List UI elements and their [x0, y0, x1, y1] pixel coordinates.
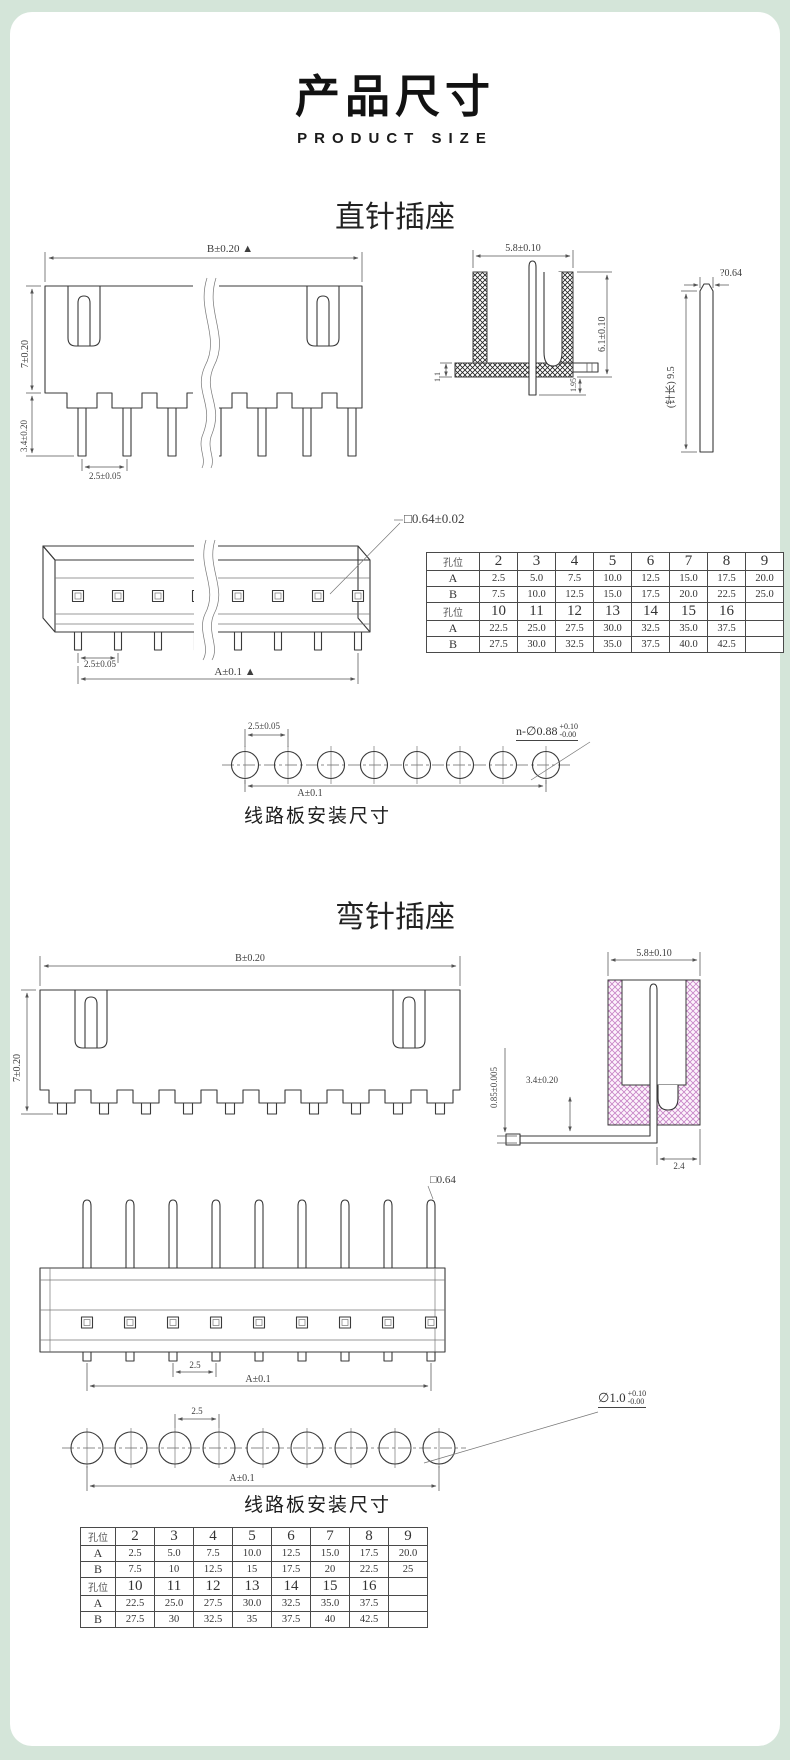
table-cell: 37.5 [272, 1612, 311, 1628]
hole-spec-tolerances: +0.10 -0.00 [559, 723, 578, 739]
table-cell: 37.5 [708, 621, 746, 637]
table-row-label: B [427, 587, 480, 603]
dim-label-bent-side-height: 3.4±0.20 [526, 1076, 558, 1086]
table-cell: 10.0 [518, 587, 556, 603]
table-cell: 17.5 [350, 1546, 389, 1562]
table-cell: 25.0 [155, 1596, 194, 1612]
table-cell: 7 [670, 553, 708, 571]
tolerance-lower: -0.00 [628, 1398, 647, 1406]
table-cell: 4 [194, 1528, 233, 1546]
table-cell: 7.5 [194, 1546, 233, 1562]
table-cell: 8 [708, 553, 746, 571]
table-cell: 10 [480, 603, 518, 621]
table-cell: 40 [311, 1612, 350, 1628]
dim-label-straight-side-height: 6.1±0.10 [597, 317, 608, 353]
dim-label-straight-front-height: 7±0.20 [20, 340, 31, 368]
dim-label-bent-side-width: 5.8±0.10 [608, 948, 700, 959]
table-row-label: B [81, 1612, 116, 1628]
table-row-label: B [81, 1562, 116, 1578]
dim-label-straight-front-pin: 3.4±0.20 [20, 420, 30, 452]
hole-spec-tolerances: +0.10 -0.00 [628, 1390, 647, 1406]
table-cell: 22.5 [116, 1596, 155, 1612]
table-cell: 30.0 [594, 621, 632, 637]
table-cell: 32.5 [272, 1596, 311, 1612]
dim-label-bent-side-pin: 0.85±0.005 [490, 1067, 500, 1108]
table-cell: 14 [272, 1578, 311, 1596]
table-cell: 7.5 [116, 1562, 155, 1578]
table-cell [389, 1578, 428, 1596]
table-cell: 3 [518, 553, 556, 571]
table-cell: 12 [556, 603, 594, 621]
dim-label-bent-pcb-pitch: 2.5 [176, 1407, 218, 1417]
table-cell: 35.0 [670, 621, 708, 637]
table-row-label: 孔位 [427, 553, 480, 571]
section-heading-straight: 直针插座 [0, 192, 790, 236]
table-cell: 27.5 [556, 621, 594, 637]
table-cell: 25.0 [746, 587, 784, 603]
table-cell: 17.5 [708, 571, 746, 587]
table-cell: 22.5 [708, 587, 746, 603]
table-cell: 37.5 [632, 637, 670, 653]
table-cell: 27.5 [116, 1612, 155, 1628]
table-cell: 17.5 [632, 587, 670, 603]
table-cell: 15.0 [311, 1546, 350, 1562]
table-cell: 15 [311, 1578, 350, 1596]
table-cell: 37.5 [350, 1596, 389, 1612]
table-cell: 7.5 [480, 587, 518, 603]
table-cell: 32.5 [194, 1612, 233, 1628]
table-row-label: A [81, 1546, 116, 1562]
table-cell: 30.0 [233, 1596, 272, 1612]
dimension-table-bent: 孔位23456789A2.55.07.510.012.515.017.520.0… [80, 1527, 428, 1628]
table-cell: 15 [233, 1562, 272, 1578]
table-cell: 22.5 [350, 1562, 389, 1578]
table-cell: 15.0 [594, 587, 632, 603]
table-cell: 20.0 [670, 587, 708, 603]
table-cell: 25 [389, 1562, 428, 1578]
table-cell: 15.0 [670, 571, 708, 587]
table-cell: 13 [594, 603, 632, 621]
dimension-table-straight: 孔位23456789A2.55.07.510.012.515.017.520.0… [426, 552, 784, 653]
table-row-label: 孔位 [427, 603, 480, 621]
table-cell: 7.5 [556, 571, 594, 587]
dim-label-bent-bottom-square: □0.64 [430, 1174, 456, 1186]
table-cell: 9 [746, 553, 784, 571]
dim-label-straight-pcb-pitch: 2.5±0.05 [234, 722, 294, 732]
dim-label-bent-bottom-pitch: 2.5 [174, 1361, 216, 1371]
table-cell: 5 [594, 553, 632, 571]
table-cell: 42.5 [350, 1612, 389, 1628]
table-cell: 10.0 [233, 1546, 272, 1562]
table-cell: 4 [556, 553, 594, 571]
dim-label-straight-pin-square: ?0.64 [720, 268, 742, 279]
table-cell: 2 [480, 553, 518, 571]
tolerance-lower: -0.00 [559, 731, 578, 739]
table-cell [746, 603, 784, 621]
dim-label-straight-side-tail: 1.95 [570, 378, 579, 392]
table-cell: 35.0 [594, 637, 632, 653]
dim-label-bent-side-tail: 2.4 [660, 1162, 698, 1172]
table-cell [746, 621, 784, 637]
table-cell: 20.0 [746, 571, 784, 587]
table-cell: 12.5 [556, 587, 594, 603]
pcb-caption-straight: 线路板安装尺寸 [235, 801, 400, 828]
dim-label-bent-front-width: B±0.20 [200, 953, 300, 964]
table-cell: 17.5 [272, 1562, 311, 1578]
table-cell: 7 [311, 1528, 350, 1546]
table-cell: 6 [632, 553, 670, 571]
table-cell: 27.5 [480, 637, 518, 653]
table-cell: 35 [233, 1612, 272, 1628]
table-row-label: A [427, 571, 480, 587]
dim-label-straight-iso-square: □0.64±0.02 [404, 512, 465, 526]
table-cell: 2.5 [116, 1546, 155, 1562]
table-cell: 15 [670, 603, 708, 621]
dim-label-straight-side-width: 5.8±0.10 [478, 243, 568, 254]
table-cell: 5.0 [155, 1546, 194, 1562]
table-cell: 16 [708, 603, 746, 621]
table-row-label: 孔位 [81, 1578, 116, 1596]
table-cell: 32.5 [632, 621, 670, 637]
table-cell [389, 1612, 428, 1628]
dim-label-straight-pcb-a: A±0.1 [270, 788, 350, 799]
page-subtitle: PRODUCT SIZE [0, 130, 790, 147]
table-cell: 10 [155, 1562, 194, 1578]
table-cell: 25.0 [518, 621, 556, 637]
table-cell: 16 [350, 1578, 389, 1596]
dim-label-straight-pin-length: (针长) 9.5 [666, 366, 677, 408]
table-cell: 42.5 [708, 637, 746, 653]
table-cell: 11 [155, 1578, 194, 1596]
dim-label-bent-front-height: 7±0.20 [12, 1054, 23, 1082]
table-cell: 12.5 [194, 1562, 233, 1578]
dim-label-straight-iso-pitch: 2.5±0.05 [58, 660, 142, 670]
table-cell: 40.0 [670, 637, 708, 653]
hole-spec-label-bent: ∅1.0 +0.10 -0.00 [598, 1390, 646, 1408]
table-row-label: A [427, 621, 480, 637]
table-cell [746, 637, 784, 653]
dim-label-straight-front-width: B±0.20 ▲ [170, 243, 290, 255]
table-cell: 14 [632, 603, 670, 621]
table-cell: 3 [155, 1528, 194, 1546]
table-cell: 35.0 [311, 1596, 350, 1612]
dim-label-bent-pcb-a: A±0.1 [210, 1473, 274, 1484]
table-cell: 2.5 [480, 571, 518, 587]
table-cell: 9 [389, 1528, 428, 1546]
pcb-caption-bent: 线路板安装尺寸 [235, 1490, 400, 1517]
table-cell: 12.5 [272, 1546, 311, 1562]
table-cell: 32.5 [556, 637, 594, 653]
table-cell: 10 [116, 1578, 155, 1596]
table-cell: 8 [350, 1528, 389, 1546]
table-row-label: B [427, 637, 480, 653]
table-cell: 27.5 [194, 1596, 233, 1612]
dim-label-bent-bottom-a: A±0.1 [230, 1374, 286, 1385]
table-cell: 10.0 [594, 571, 632, 587]
dim-label-straight-side-base: 1.1 [434, 372, 443, 382]
table-cell: 11 [518, 603, 556, 621]
table-cell: 12 [194, 1578, 233, 1596]
table-cell: 13 [233, 1578, 272, 1596]
table-cell: 12.5 [632, 571, 670, 587]
hole-spec-label-straight: n-∅0.88 +0.10 -0.00 [516, 723, 578, 741]
table-cell: 30.0 [518, 637, 556, 653]
table-row-label: A [81, 1596, 116, 1612]
page-title: 产品尺寸 [0, 60, 790, 125]
table-cell: 6 [272, 1528, 311, 1546]
table-row-label: 孔位 [81, 1528, 116, 1546]
table-cell [389, 1596, 428, 1612]
dim-label-straight-front-pitch: 2.5±0.05 [62, 472, 148, 482]
table-cell: 5 [233, 1528, 272, 1546]
table-cell: 30 [155, 1612, 194, 1628]
hole-spec-prefix: ∅1.0 [598, 1390, 626, 1406]
section-heading-bent: 弯针插座 [0, 892, 790, 936]
hole-spec-prefix: n-∅0.88 [516, 724, 557, 739]
content-card [10, 12, 780, 1746]
table-cell: 20 [311, 1562, 350, 1578]
table-cell: 5.0 [518, 571, 556, 587]
table-cell: 20.0 [389, 1546, 428, 1562]
table-cell: 22.5 [480, 621, 518, 637]
dim-label-straight-iso-a: A±0.1 ▲ [185, 666, 285, 678]
table-cell: 2 [116, 1528, 155, 1546]
page-background: 产品尺寸 PRODUCT SIZE 直针插座 弯针插座 [0, 0, 790, 1760]
